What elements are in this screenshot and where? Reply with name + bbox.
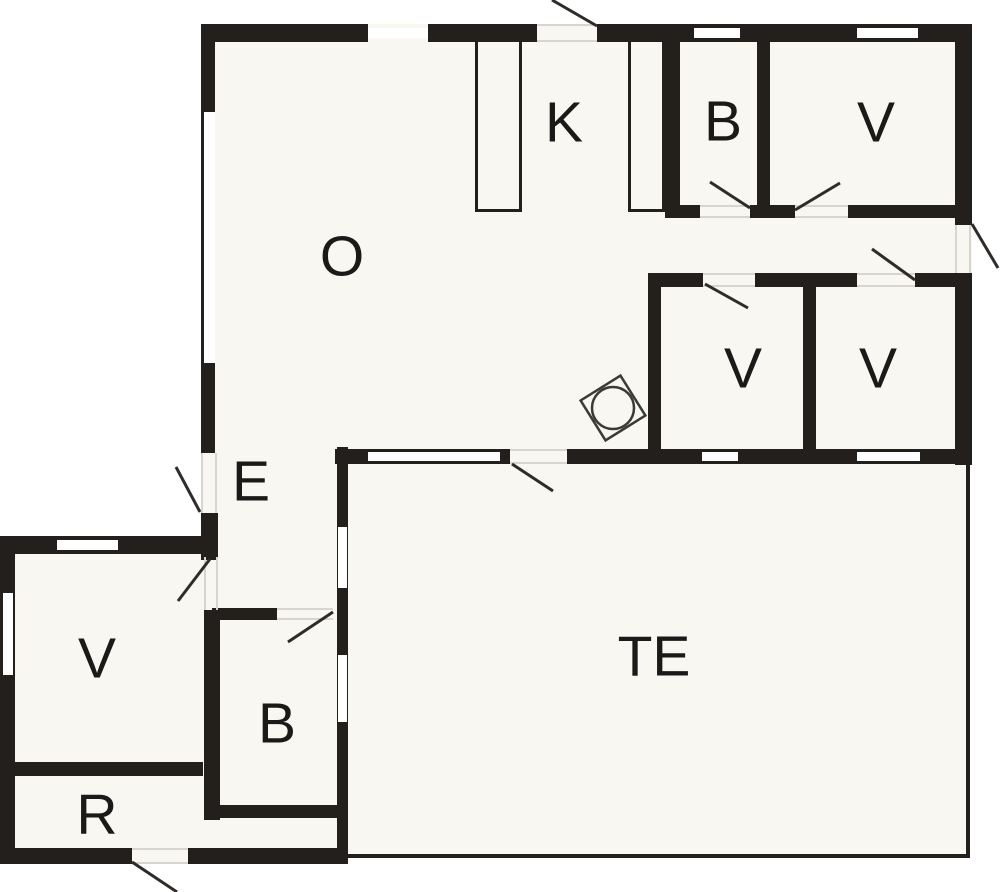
room-label-terrace: TE — [618, 629, 691, 686]
door-threshold-line — [857, 285, 915, 287]
window-opening — [368, 28, 428, 38]
door-threshold-line — [510, 449, 567, 451]
kitchen-partition — [475, 42, 522, 212]
window-opening — [204, 112, 215, 363]
door-threshold-line — [703, 285, 755, 287]
room-label-bedroom-lower-left: V — [78, 631, 116, 688]
door-threshold-line — [277, 618, 333, 620]
wall-segment — [0, 536, 15, 864]
window-opening — [857, 28, 918, 38]
room-label-bedroom-mid-left: V — [724, 341, 762, 398]
window-opening — [857, 452, 920, 461]
door-threshold-line — [216, 557, 218, 610]
door-threshold-line — [510, 462, 567, 464]
window-opening — [3, 593, 13, 675]
room-label-bathroom-top: B — [704, 94, 742, 151]
room-label-bathroom-bottom: B — [258, 696, 296, 753]
wall-segment — [665, 42, 680, 218]
wall-segment — [348, 854, 970, 858]
window-opening — [57, 540, 118, 550]
door-swing-line — [176, 467, 200, 512]
wall-segment — [648, 273, 661, 450]
door-swing-line — [972, 224, 998, 268]
window-opening — [368, 452, 500, 461]
door-threshold-line — [700, 205, 750, 207]
wall-segment — [803, 273, 816, 464]
wall-segment — [955, 24, 972, 225]
room-label-bedroom-mid-right: V — [859, 341, 897, 398]
room-label-living-room: O — [320, 229, 364, 286]
wall-segment — [955, 273, 972, 465]
kitchen-partition — [628, 42, 665, 212]
door-threshold-line — [537, 24, 597, 26]
door-threshold-line — [955, 225, 957, 273]
wall-segment — [966, 464, 970, 858]
wall-segment — [212, 608, 277, 620]
wall-segment — [201, 24, 368, 42]
floor-plan-canvas: OKBVVVEVRBTE — [0, 0, 1000, 892]
door-threshold-line — [201, 453, 203, 513]
door-threshold-line — [857, 273, 915, 275]
window-opening — [338, 655, 347, 722]
wall-segment — [757, 42, 770, 218]
door-swing-line — [552, 0, 597, 26]
door-threshold-line — [795, 216, 848, 218]
wall-segment — [750, 205, 795, 218]
door-threshold-line — [703, 273, 755, 275]
wall-segment — [665, 205, 700, 218]
door-threshold-line — [277, 608, 333, 610]
wall-segment — [204, 610, 220, 820]
wall-segment — [204, 805, 337, 818]
door-threshold-line — [537, 40, 597, 42]
window-opening — [694, 28, 740, 38]
wall-segment — [848, 205, 972, 218]
door-threshold-line — [132, 862, 188, 864]
wall-segment — [15, 762, 203, 776]
door-threshold-line — [700, 216, 750, 218]
room-label-storage-room: R — [76, 787, 117, 844]
door-threshold-line — [795, 205, 848, 207]
window-opening — [702, 452, 738, 461]
wall-segment — [915, 273, 972, 287]
wall-segment — [0, 848, 132, 864]
door-threshold-line — [204, 557, 206, 610]
room-label-kitchen: K — [545, 95, 583, 152]
room-label-entrance: E — [232, 454, 270, 511]
door-swing-line — [132, 862, 177, 892]
room-label-bedroom-top-right: V — [857, 95, 895, 152]
wall-segment — [428, 24, 537, 42]
door-threshold-line — [969, 225, 971, 273]
wall-segment — [188, 848, 348, 864]
door-threshold-line — [215, 453, 217, 513]
door-threshold-line — [132, 848, 188, 850]
window-opening — [338, 527, 347, 588]
